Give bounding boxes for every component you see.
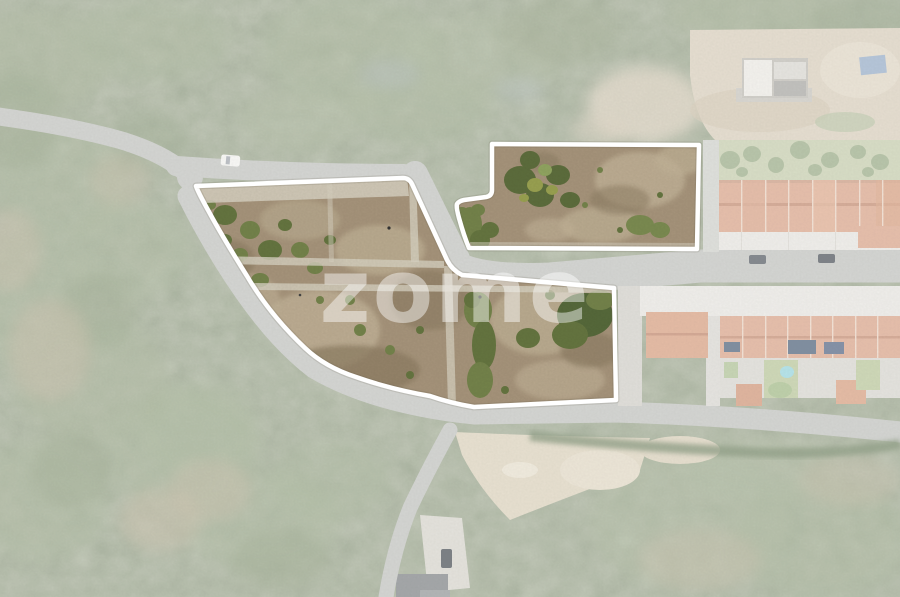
watermark-text: zome <box>319 240 590 343</box>
aerial-photo-canvas: zome <box>0 0 900 597</box>
aerial-photo: zome <box>0 0 900 597</box>
